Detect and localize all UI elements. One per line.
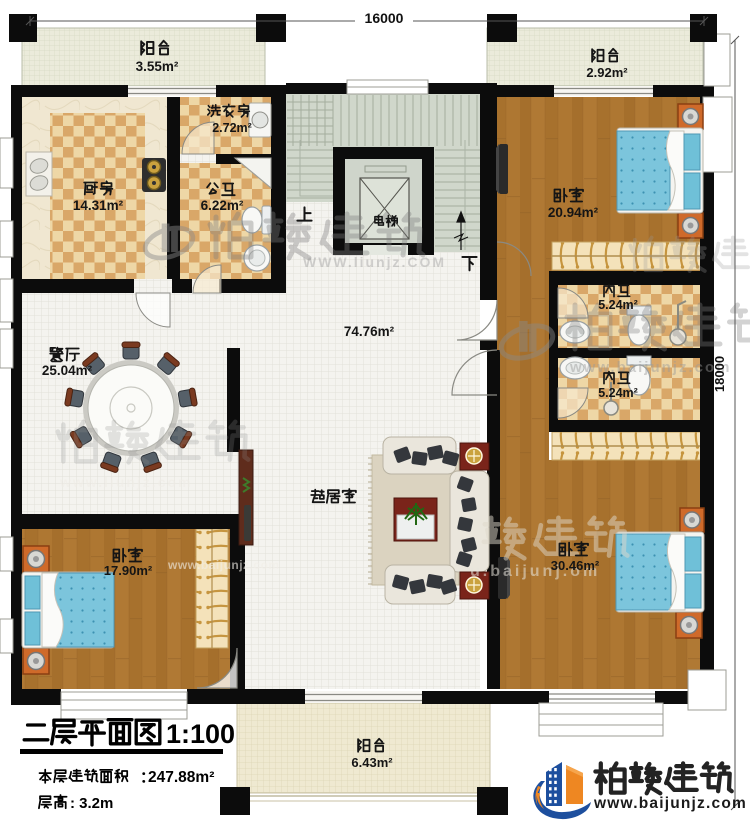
svg-text:www.baijunjz.com: www.baijunjz.com xyxy=(593,795,747,812)
svg-text:6.43m²: 6.43m² xyxy=(351,755,393,770)
svg-text:www.baijunjz.com: www.baijunjz.com xyxy=(167,558,280,572)
svg-text:14.31m²: 14.31m² xyxy=(73,198,124,213)
svg-text:30.46m²: 30.46m² xyxy=(551,558,600,573)
svg-text:2.92m²: 2.92m² xyxy=(586,65,628,80)
svg-text:: 3.2m: : 3.2m xyxy=(70,795,113,812)
svg-text:18000: 18000 xyxy=(712,356,727,392)
svg-text:25.04m²: 25.04m² xyxy=(42,363,93,378)
svg-text:247.88m²: 247.88m² xyxy=(148,769,214,786)
svg-text:WWW.liunjz.COM: WWW.liunjz.COM xyxy=(303,254,446,270)
svg-text:www.baijunjz.com: www.baijunjz.com xyxy=(569,359,731,376)
svg-text:74.76m²: 74.76m² xyxy=(344,324,395,339)
svg-text:2.72m²: 2.72m² xyxy=(212,121,252,135)
svg-text:16000: 16000 xyxy=(365,10,404,26)
svg-text:1:100: 1:100 xyxy=(166,719,235,749)
svg-text:6.22m²: 6.22m² xyxy=(201,198,244,213)
svg-text:17.90m²: 17.90m² xyxy=(104,563,153,578)
svg-text:5.24m²: 5.24m² xyxy=(598,386,638,400)
svg-text:20.94m²: 20.94m² xyxy=(548,205,599,220)
svg-text:5.24m²: 5.24m² xyxy=(598,298,638,312)
svg-text:www.liunjz.com: www.liunjz.com xyxy=(59,474,193,490)
svg-text:3.55m²: 3.55m² xyxy=(136,59,179,74)
